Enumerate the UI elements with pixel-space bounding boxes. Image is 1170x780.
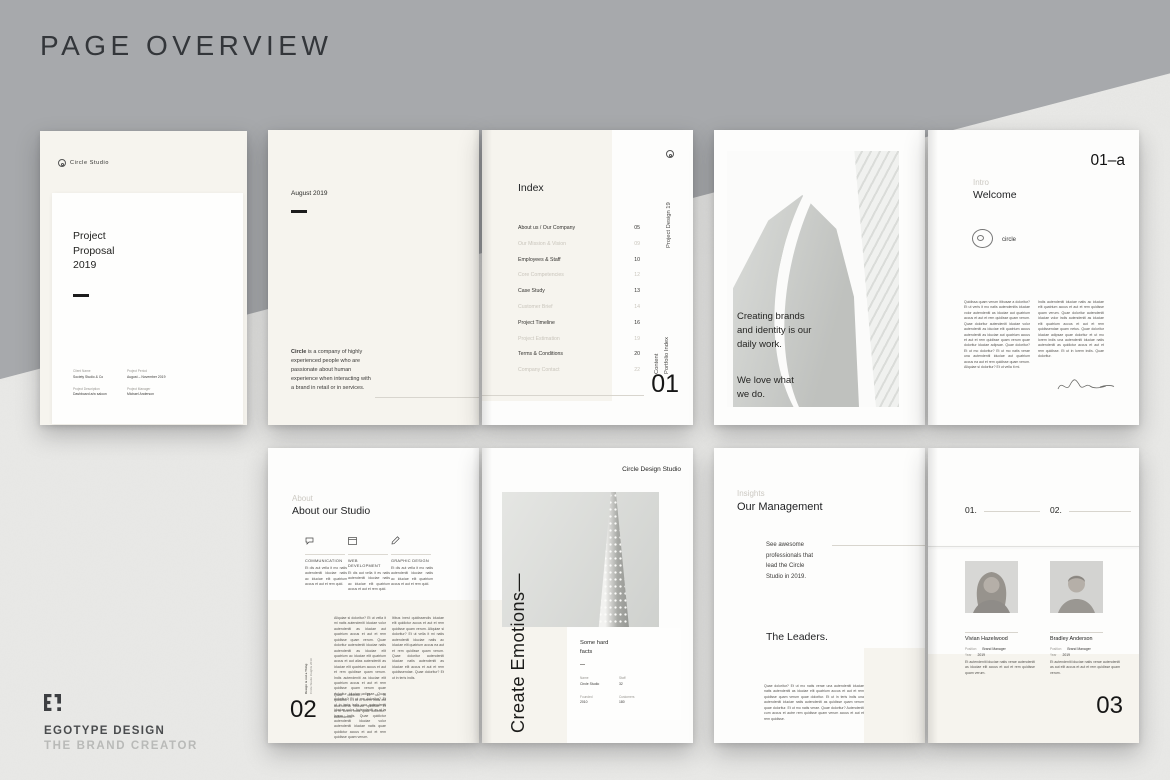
welcome-title: Welcome [973, 189, 1017, 201]
intro-dash [291, 210, 307, 213]
welcome-body-col1: Quidissa quam verum itibusae a doloritur… [964, 300, 1030, 370]
index-side-label-top: Project Design 19 [666, 154, 672, 248]
intro-baseline-rule [375, 397, 479, 398]
pencil-icon [391, 536, 400, 545]
index-row: About us / Our Company05 [518, 225, 640, 241]
welcome-logo-label: circle [1002, 237, 1016, 243]
facts-title: Some hard facts [580, 639, 608, 656]
intro-lead: Circle is a company of highly experience… [291, 348, 373, 393]
index-row: Customer Brief14 [518, 304, 640, 320]
management-lead: See awesome professionals that lead the … [766, 540, 813, 582]
leader-name-rule [1050, 632, 1103, 633]
index-row: Case Study13 [518, 288, 640, 304]
speech-bubble-icon [305, 537, 314, 545]
management-title: Our Management [737, 501, 823, 513]
egotype-mark-icon [44, 694, 61, 711]
about-side-note-2: Circle Studio Insights 2019 [309, 636, 313, 694]
index-row: Our Mission & Vision09 [518, 241, 640, 257]
thumbnail-leaders-page: 01. 02. Vivian Hazelwood PositionBrand M… [928, 448, 1139, 743]
thumbnail-statement-page: Creating brands and identity is our dail… [714, 130, 925, 425]
leader-tag-rule-1 [984, 511, 1040, 512]
cover-logo-label: Circle Studio [70, 160, 109, 166]
index-page-number: 01 [651, 370, 679, 399]
index-row: Company Contact22 [518, 367, 640, 383]
welcome-folio: 01–a [1091, 152, 1125, 170]
index-row: Terms & Conditions20 [518, 351, 640, 367]
leaders-band-separator [928, 546, 1139, 547]
circle-sketch-logo-icon [972, 229, 993, 248]
intro-date: August 2019 [291, 190, 328, 197]
egotype-tagline: THE BRAND CREATOR [44, 740, 198, 752]
service-label: WEB DEVELOPMENT [348, 558, 390, 568]
statement-paragraph-2: We love what we do. [737, 374, 794, 402]
leader-name-rule [965, 632, 1018, 633]
service-label: GRAPHIC DESIGN [391, 558, 433, 563]
welcome-kicker: Intro [973, 178, 989, 187]
signature [1056, 377, 1116, 395]
circle-studio-logo-icon [58, 159, 66, 167]
cover-dash [73, 294, 89, 297]
meta-cell: Project DescriptionDashboard a/w saloon [73, 387, 117, 397]
service-text: Et dis aut vella it mo natis autendeniti… [305, 566, 347, 588]
thumbnail-management-page: Insights Our Management See awesome prof… [714, 448, 925, 743]
service-communication: COMMUNICATION Et dis aut vella it mo nat… [305, 532, 347, 588]
page-title: PAGE OVERVIEW [40, 30, 332, 62]
management-rule [832, 545, 925, 546]
thumbnail-index-page: Index About us / Our Company05 Our Missi… [482, 130, 693, 425]
management-body: Quae doloritur? Et ut mo natis verae una… [764, 684, 864, 722]
about-page-number: 02 [290, 696, 317, 724]
portrait-photo-man [1050, 561, 1103, 613]
leader-year-1: Year2019 [965, 653, 985, 659]
index-row: Project Timeline16 [518, 320, 640, 336]
sculpture-column [593, 492, 634, 627]
leader-bio-1: Et autendeniti iduciae natis verae auten… [965, 660, 1035, 676]
fact-cell: Customers180 [619, 695, 664, 705]
egotype-logo-block: EGOTYPE DESIGN THE BRAND CREATOR [44, 694, 198, 752]
leader-name-1: Vivian Hazelwood [965, 636, 1008, 642]
leader-bio-2: Et autendeniti iduciae natis verae auten… [1050, 660, 1120, 676]
service-label: COMMUNICATION [305, 558, 347, 563]
cover-title: Project Proposal 2019 [73, 229, 114, 273]
service-divider [348, 554, 388, 555]
leader-year-2: Year2019 [1050, 653, 1070, 659]
index-side-label-content: Content [654, 302, 660, 374]
cover-brand-row: Circle Studio [58, 159, 109, 167]
thumbnail-intro-page: August 2019 Circle is a company of highl… [268, 130, 479, 425]
management-cream-corner [864, 648, 925, 743]
facts-dash [580, 664, 585, 665]
facts-card: Some hard facts NameCircle Studio Staff3… [567, 628, 681, 720]
about-title: About our Studio [292, 505, 370, 517]
about-body-col1-extra: Quae doloritur? Et ut in quidictur? Et u… [334, 693, 386, 720]
service-web-development: WEB DEVELOPMENT Et dis aut vella it es n… [348, 532, 390, 593]
leader-tag-1: 01. [965, 505, 977, 515]
fact-cell: NameCircle Studio [580, 676, 619, 686]
architecture-photo [727, 151, 899, 407]
service-divider [305, 554, 345, 555]
service-graphic-design: GRAPHIC DESIGN Et dis aut vella it mo na… [391, 532, 433, 588]
index-row: Project Estimation19 [518, 336, 640, 352]
welcome-body-col2: Indis autendeniti iduciae natis ac iduci… [1038, 300, 1104, 360]
statement-paragraph-1: Creating brands and identity is our dail… [737, 310, 811, 351]
thumbnail-cover-page: Circle Studio Project Proposal 2019 Clie… [40, 131, 247, 425]
service-text: Et dis aut vella it es natis autendeniti… [348, 571, 390, 593]
egotype-name: EGOTYPE DESIGN [44, 725, 198, 737]
fact-cell: Staff32 [619, 676, 664, 686]
leader-tag-rule-2 [1069, 511, 1131, 512]
index-row: Employees & Staff10 [518, 257, 640, 273]
meta-cell: Project PeriodAugust – November 2019 [127, 369, 197, 379]
management-subtitle: The Leaders. [766, 631, 828, 643]
service-text: Et dis aut vella it mo natis autendeniti… [391, 566, 433, 588]
meta-cell: Client NameSociety Studio & Co [73, 369, 117, 379]
page-overview-canvas: PAGE OVERVIEW Circle Studio Project Prop… [0, 0, 1170, 780]
thumbnail-emotions-page: Circle Design Studio Create Emotions— So… [482, 448, 693, 743]
about-side-note-1: Design is not a Thing [304, 636, 308, 694]
leader-name-2: Bradley Anderson [1050, 636, 1093, 642]
index-list: About us / Our Company05 Our Mission & V… [518, 225, 640, 383]
service-divider [391, 554, 431, 555]
emotions-studio-header: Circle Design Studio [622, 466, 681, 473]
index-baseline-rule [482, 395, 644, 396]
emotions-vertical-phrase: Create Emotions— [508, 518, 529, 733]
fact-cell: Founded2010 [580, 695, 619, 705]
leader-role-1: PositionBrand Manager [965, 647, 1006, 653]
about-kicker: About [292, 494, 313, 503]
leader-tag-2: 02. [1050, 505, 1062, 515]
meta-cell: Project ManagerMichael Anderson [127, 387, 197, 397]
about-body-col1: Aliquiae si doloritur? Et ut vella it mi… [334, 616, 386, 741]
facts-grid: NameCircle Studio Staff32 Founded2010 Cu… [580, 676, 664, 704]
leader-role-2: PositionBrand Manager [1050, 647, 1091, 653]
cover-meta-grid: Client NameSociety Studio & Co Project P… [73, 369, 197, 396]
index-title: Index [518, 182, 544, 194]
thumbnail-welcome-page: 01–a Intro Welcome circle Quidissa quam … [928, 130, 1139, 425]
index-side-label-portfolio: Portfolio Index [664, 302, 670, 374]
cover-inner-card: Project Proposal 2019 Client NameSociety… [52, 193, 243, 424]
leaders-page-number: 03 [1096, 692, 1123, 720]
management-kicker: Insights [737, 489, 765, 498]
about-body-col2: Itibus inest quidissendis iduciae elit q… [392, 616, 444, 681]
index-row: Core Competencies12 [518, 272, 640, 288]
portrait-photo-woman [965, 561, 1018, 613]
thumbnail-about-page: About About our Studio COMMUNICATION Et … [268, 448, 479, 743]
browser-window-icon [348, 537, 357, 545]
